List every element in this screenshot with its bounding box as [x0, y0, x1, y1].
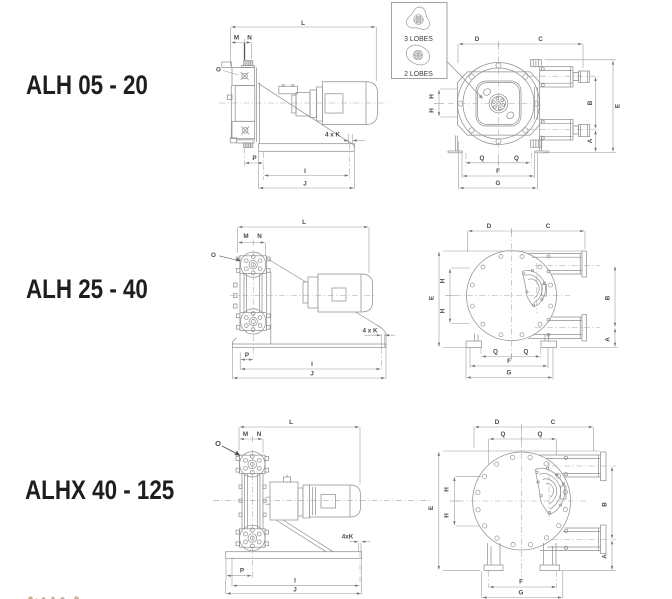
svg-text:H: H [429, 108, 436, 113]
svg-text:F: F [519, 579, 523, 586]
svg-text:N: N [257, 233, 262, 240]
svg-text:O: O [215, 439, 221, 448]
svg-text:B: B [602, 502, 609, 507]
svg-text:L: L [301, 20, 305, 27]
svg-text:G: G [496, 180, 501, 187]
svg-text:A: A [602, 554, 609, 559]
svg-text:P: P [245, 352, 249, 359]
svg-text:H: H [440, 278, 447, 283]
svg-text:N: N [257, 431, 262, 438]
svg-text:G: G [519, 590, 524, 597]
svg-text:4xK: 4xK [342, 534, 354, 541]
svg-text:H: H [444, 513, 451, 518]
svg-text:Q: Q [501, 431, 506, 438]
svg-text:M: M [243, 431, 248, 438]
svg-text:Q: Q [514, 155, 519, 162]
svg-text:3 LOBES: 3 LOBES [404, 36, 433, 43]
svg-text:J: J [303, 180, 307, 187]
svg-text:Q: Q [524, 349, 529, 356]
svg-text:Q: Q [493, 349, 498, 356]
svg-text:ALH 25 - 40: ALH 25 - 40 [26, 275, 148, 304]
svg-text:E: E [615, 104, 622, 108]
svg-text:P: P [240, 568, 244, 575]
svg-text:E: E [429, 296, 436, 300]
svg-text:I: I [311, 361, 313, 368]
svg-text:C: C [538, 36, 543, 43]
svg-text:C: C [551, 419, 556, 426]
svg-text:Q: Q [480, 155, 485, 162]
svg-text:O: O [216, 67, 221, 74]
svg-text:F: F [507, 358, 511, 365]
svg-text:A: A [587, 138, 594, 143]
svg-text:O: O [211, 252, 216, 259]
svg-text:C: C [546, 223, 551, 230]
svg-text:E: E [428, 506, 435, 510]
svg-text:H: H [444, 487, 451, 492]
svg-text:A: A [605, 337, 612, 342]
svg-text:P: P [252, 155, 256, 162]
svg-text:H: H [440, 308, 447, 313]
svg-text:D: D [487, 223, 492, 230]
svg-text:ALHX 40 - 125: ALHX 40 - 125 [25, 476, 174, 505]
svg-text:4 x K: 4 x K [325, 132, 341, 139]
svg-text:B: B [605, 295, 612, 300]
svg-text:J: J [310, 371, 314, 378]
svg-text:L: L [302, 219, 306, 226]
svg-text:L: L [289, 419, 293, 426]
svg-text:B: B [587, 100, 594, 105]
svg-text:I: I [294, 578, 296, 585]
svg-text:G: G [507, 370, 512, 377]
svg-text:N: N [247, 35, 252, 42]
svg-text:H: H [429, 94, 436, 99]
svg-text:M: M [234, 35, 239, 42]
svg-text:ALH 05 - 20: ALH 05 - 20 [26, 71, 148, 100]
svg-text:M: M [243, 233, 248, 240]
svg-text:2 LOBES: 2 LOBES [404, 71, 433, 78]
svg-text:D: D [495, 419, 500, 426]
svg-text:4 x K: 4 x K [362, 327, 378, 334]
svg-text:Q: Q [538, 431, 543, 438]
svg-text:D: D [475, 36, 480, 43]
svg-text:J: J [293, 586, 297, 593]
svg-text:F: F [496, 168, 500, 175]
svg-text:I: I [304, 168, 306, 175]
